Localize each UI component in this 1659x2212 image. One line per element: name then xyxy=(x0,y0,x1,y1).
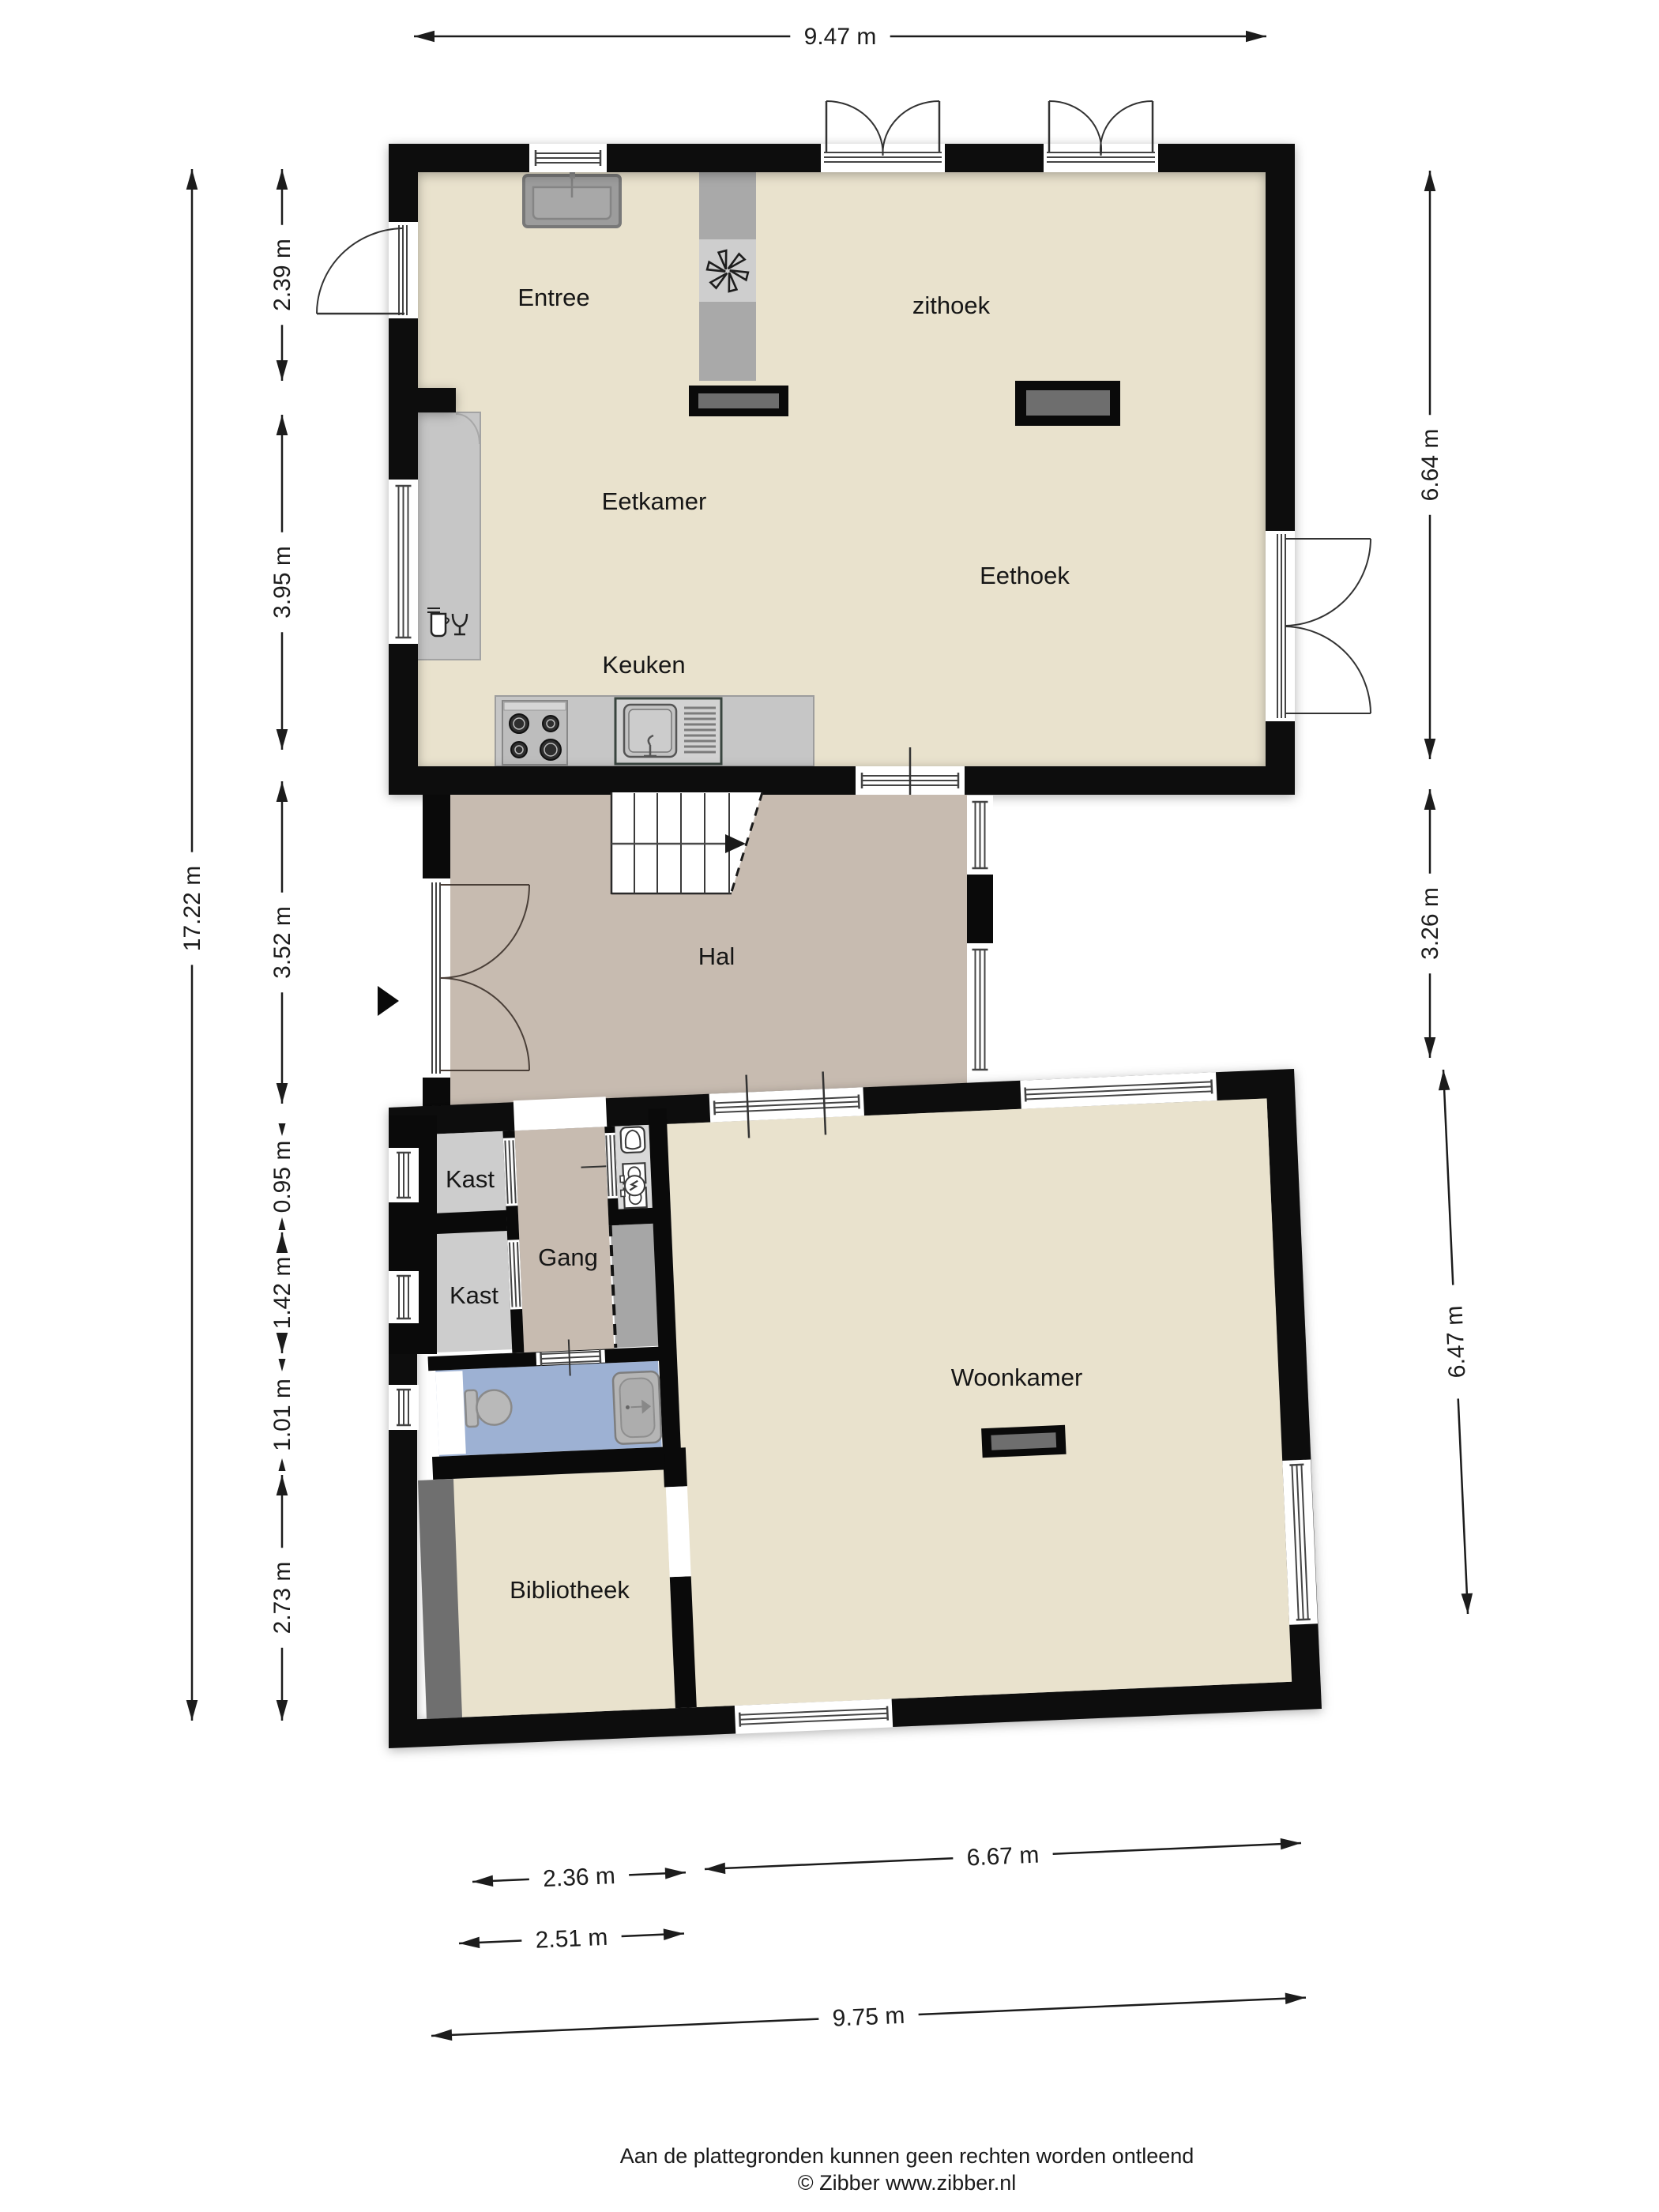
svg-text:6.67 m: 6.67 m xyxy=(966,1842,1040,1872)
svg-text:© Zibber www.zibber.nl: © Zibber www.zibber.nl xyxy=(798,2171,1017,2195)
svg-text:9.75 m: 9.75 m xyxy=(832,2003,905,2032)
svg-text:zithoek: zithoek xyxy=(912,292,991,319)
svg-text:Eetkamer: Eetkamer xyxy=(602,487,707,515)
svg-text:6.64 m: 6.64 m xyxy=(1417,429,1443,502)
svg-text:2.51 m: 2.51 m xyxy=(535,1924,608,1954)
svg-text:Keuken: Keuken xyxy=(602,651,685,679)
svg-text:6.47 m: 6.47 m xyxy=(1441,1305,1470,1379)
svg-text:3.95 m: 3.95 m xyxy=(269,546,295,619)
svg-text:2.73 m: 2.73 m xyxy=(269,1562,295,1635)
svg-text:Entree: Entree xyxy=(517,284,589,311)
svg-text:Eethoek: Eethoek xyxy=(980,562,1070,589)
svg-text:1.42 m: 1.42 m xyxy=(269,1257,295,1330)
svg-text:Aan de plattegronden kunnen ge: Aan de plattegronden kunnen geen rechten… xyxy=(620,2144,1194,2168)
svg-text:9.47 m: 9.47 m xyxy=(804,24,877,50)
svg-text:1.01 m: 1.01 m xyxy=(269,1379,295,1451)
svg-text:Kast: Kast xyxy=(450,1281,498,1309)
svg-text:2.39 m: 2.39 m xyxy=(269,239,295,311)
svg-text:Woonkamer: Woonkamer xyxy=(951,1364,1083,1391)
svg-text:3.26 m: 3.26 m xyxy=(1417,887,1443,960)
svg-text:Gang: Gang xyxy=(538,1243,598,1271)
svg-text:17.22 m: 17.22 m xyxy=(179,866,205,951)
svg-text:Hal: Hal xyxy=(698,942,735,970)
svg-text:Bibliotheek: Bibliotheek xyxy=(510,1576,630,1604)
svg-text:Kast: Kast xyxy=(446,1165,495,1193)
svg-text:0.95 m: 0.95 m xyxy=(269,1141,295,1213)
svg-text:2.36 m: 2.36 m xyxy=(542,1863,615,1892)
svg-text:3.52 m: 3.52 m xyxy=(269,906,295,979)
